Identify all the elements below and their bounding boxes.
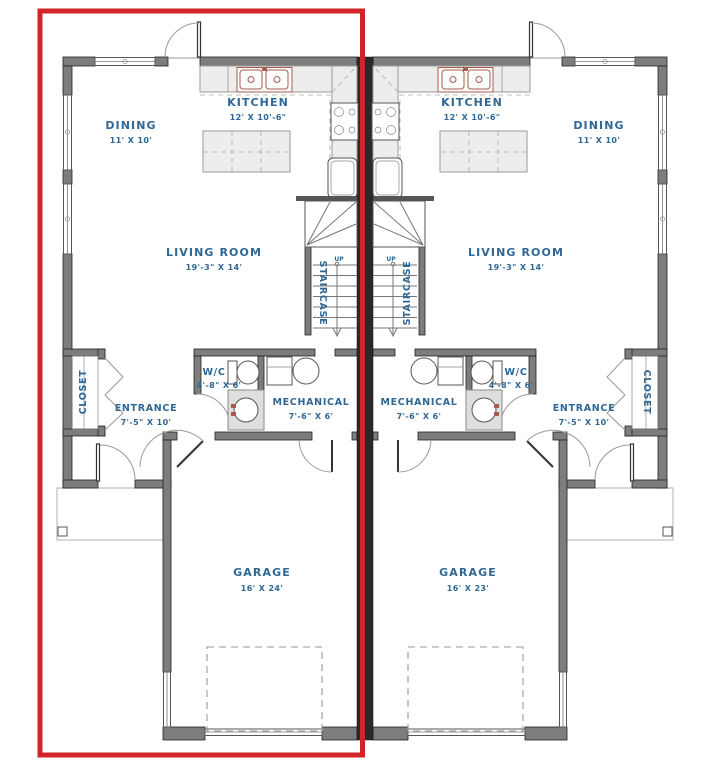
garage-dims: 16' X 24' [241,584,284,593]
dining-label: DINING [105,119,156,132]
mechanical-label: MECHANICAL [380,397,457,408]
living-room-label: LIVING ROOM [166,246,262,259]
mechanical-dims: 7'-6" X 6' [397,412,442,421]
closet-label: CLOSET [78,370,89,415]
staircase-label: STAIRCASE [402,261,413,326]
kitchen-label: KITCHEN [227,96,289,109]
entrance-dims: 7'-5" X 10' [121,418,172,427]
wc-dims: 4'-8" X 6' [197,381,242,390]
wc-label: W/C [202,367,225,378]
living-room-dims: 19'-3" X 14' [186,263,243,272]
wc-dims: 4'-8" X 6' [489,381,534,390]
staircase-label: STAIRCASE [317,261,328,326]
stair-up-label: UP [334,256,344,263]
stair-up-label: UP [386,256,396,263]
garage-dims: 16' X 23' [447,584,490,593]
garage-label: GARAGE [233,566,291,579]
dining-dims: 11' X 10' [110,136,153,145]
floor-plan-canvas: KITCHEN 12' X 10'-6" DINING 11' X 10' LI… [0,0,725,768]
kitchen-dims: 12' X 10'-6" [230,113,287,122]
entrance-dims: 7'-5" X 10' [559,418,610,427]
kitchen-label: KITCHEN [441,96,503,109]
closet-label: CLOSET [641,370,652,415]
dining-label: DINING [573,119,624,132]
dining-dims: 11' X 10' [578,136,621,145]
mechanical-label: MECHANICAL [272,397,349,408]
living-room-dims: 19'-3" X 14' [488,263,545,272]
floor-plan: KITCHEN 12' X 10'-6" DINING 11' X 10' LI… [0,0,725,768]
living-room-label: LIVING ROOM [468,246,564,259]
entrance-label: ENTRANCE [553,403,616,414]
garage-label: GARAGE [439,566,497,579]
wc-label: W/C [504,367,527,378]
kitchen-dims: 12' X 10'-6" [444,113,501,122]
mechanical-dims: 7'-6" X 6' [289,412,334,421]
entrance-label: ENTRANCE [115,403,178,414]
